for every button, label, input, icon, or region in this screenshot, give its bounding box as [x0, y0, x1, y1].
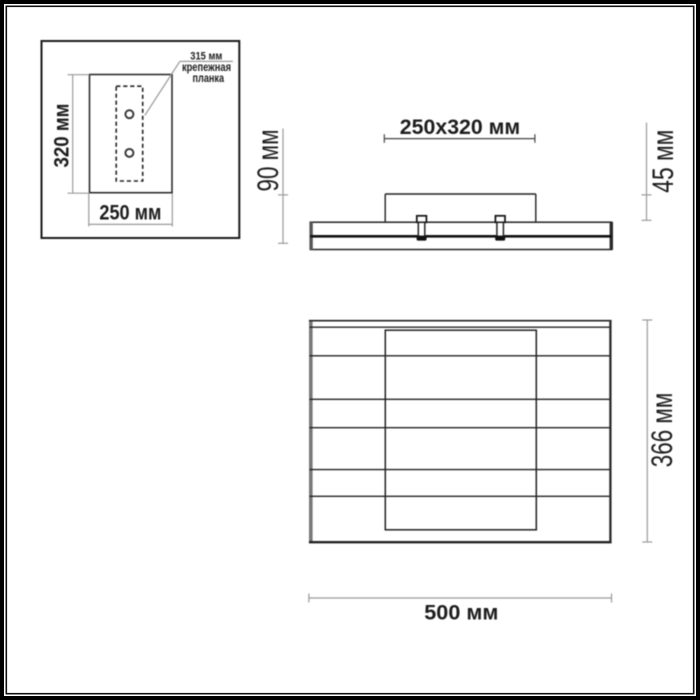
svg-text:45 мм: 45 мм [647, 130, 680, 193]
svg-text:250x320 мм: 250x320 мм [400, 116, 520, 139]
svg-text:500 мм: 500 мм [424, 600, 498, 624]
svg-text:320 мм: 320 мм [50, 104, 74, 168]
svg-text:250 мм: 250 мм [99, 200, 161, 224]
svg-text:90 мм: 90 мм [252, 130, 285, 192]
svg-text:366 мм: 366 мм [646, 393, 679, 468]
svg-text:планка: планка [193, 71, 225, 85]
